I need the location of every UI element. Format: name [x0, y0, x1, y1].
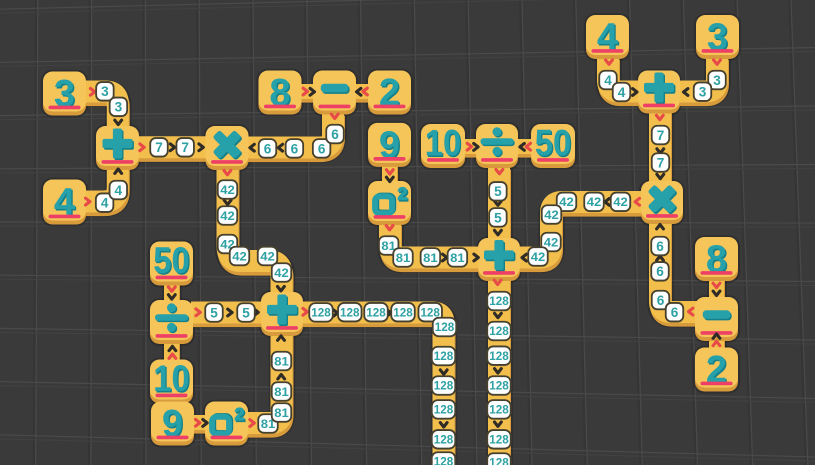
svg-text:42: 42 — [613, 195, 628, 209]
svg-text:3: 3 — [101, 84, 109, 99]
svg-text:10: 10 — [425, 123, 462, 164]
svg-text:5: 5 — [242, 305, 250, 320]
svg-text:42: 42 — [274, 266, 289, 280]
svg-text:81: 81 — [423, 251, 438, 265]
svg-text:128: 128 — [489, 433, 509, 447]
svg-text:10: 10 — [153, 358, 190, 399]
svg-text:42: 42 — [531, 250, 546, 264]
svg-text:42: 42 — [260, 249, 275, 263]
svg-text:3: 3 — [713, 73, 721, 88]
svg-text:5: 5 — [494, 210, 502, 225]
svg-text:128: 128 — [434, 379, 454, 393]
svg-text:5: 5 — [210, 305, 218, 320]
svg-text:6: 6 — [656, 264, 664, 279]
svg-text:3: 3 — [115, 100, 123, 115]
svg-text:6: 6 — [264, 141, 272, 156]
svg-text:7: 7 — [155, 140, 163, 155]
svg-text:4: 4 — [115, 183, 123, 198]
svg-text:2: 2 — [235, 404, 245, 424]
svg-text:128: 128 — [434, 349, 454, 363]
svg-text:42: 42 — [220, 183, 235, 197]
svg-text:50: 50 — [535, 123, 572, 164]
svg-text:4: 4 — [604, 73, 612, 88]
svg-text:7: 7 — [181, 140, 189, 155]
svg-text:128: 128 — [434, 433, 454, 447]
svg-text:128: 128 — [311, 306, 331, 320]
svg-text:128: 128 — [366, 305, 386, 319]
svg-text:42: 42 — [559, 195, 574, 209]
svg-text:128: 128 — [340, 305, 360, 319]
svg-text:4: 4 — [618, 85, 626, 100]
svg-text:42: 42 — [544, 235, 559, 249]
svg-text:128: 128 — [435, 320, 455, 334]
svg-text:6: 6 — [318, 141, 326, 156]
svg-text:4: 4 — [101, 196, 109, 211]
svg-text:128: 128 — [489, 403, 509, 417]
svg-text:6: 6 — [671, 305, 679, 320]
svg-text:7: 7 — [657, 155, 665, 170]
svg-text:81: 81 — [274, 406, 289, 420]
svg-text:6: 6 — [331, 127, 339, 142]
svg-text:42: 42 — [587, 195, 602, 209]
svg-text:50: 50 — [153, 240, 190, 281]
svg-text:128: 128 — [393, 305, 413, 319]
svg-text:6: 6 — [657, 293, 665, 308]
svg-text:6: 6 — [291, 141, 299, 156]
svg-text:5: 5 — [494, 184, 502, 199]
svg-text:81: 81 — [274, 385, 289, 399]
svg-text:2: 2 — [398, 183, 408, 203]
svg-text:128: 128 — [434, 455, 454, 465]
svg-text:81: 81 — [274, 354, 289, 368]
svg-text:128: 128 — [489, 294, 509, 308]
svg-text:3: 3 — [699, 85, 707, 100]
svg-text:81: 81 — [396, 251, 411, 265]
svg-text:128: 128 — [434, 403, 454, 417]
svg-text:128: 128 — [489, 349, 509, 363]
svg-text:6: 6 — [656, 239, 664, 254]
svg-text:81: 81 — [450, 251, 465, 265]
svg-text:128: 128 — [489, 324, 509, 338]
svg-text:128: 128 — [489, 456, 509, 465]
svg-text:128: 128 — [489, 379, 509, 393]
svg-text:42: 42 — [220, 209, 235, 223]
svg-text:42: 42 — [544, 208, 559, 222]
svg-text:42: 42 — [232, 249, 247, 263]
svg-text:7: 7 — [657, 128, 665, 143]
